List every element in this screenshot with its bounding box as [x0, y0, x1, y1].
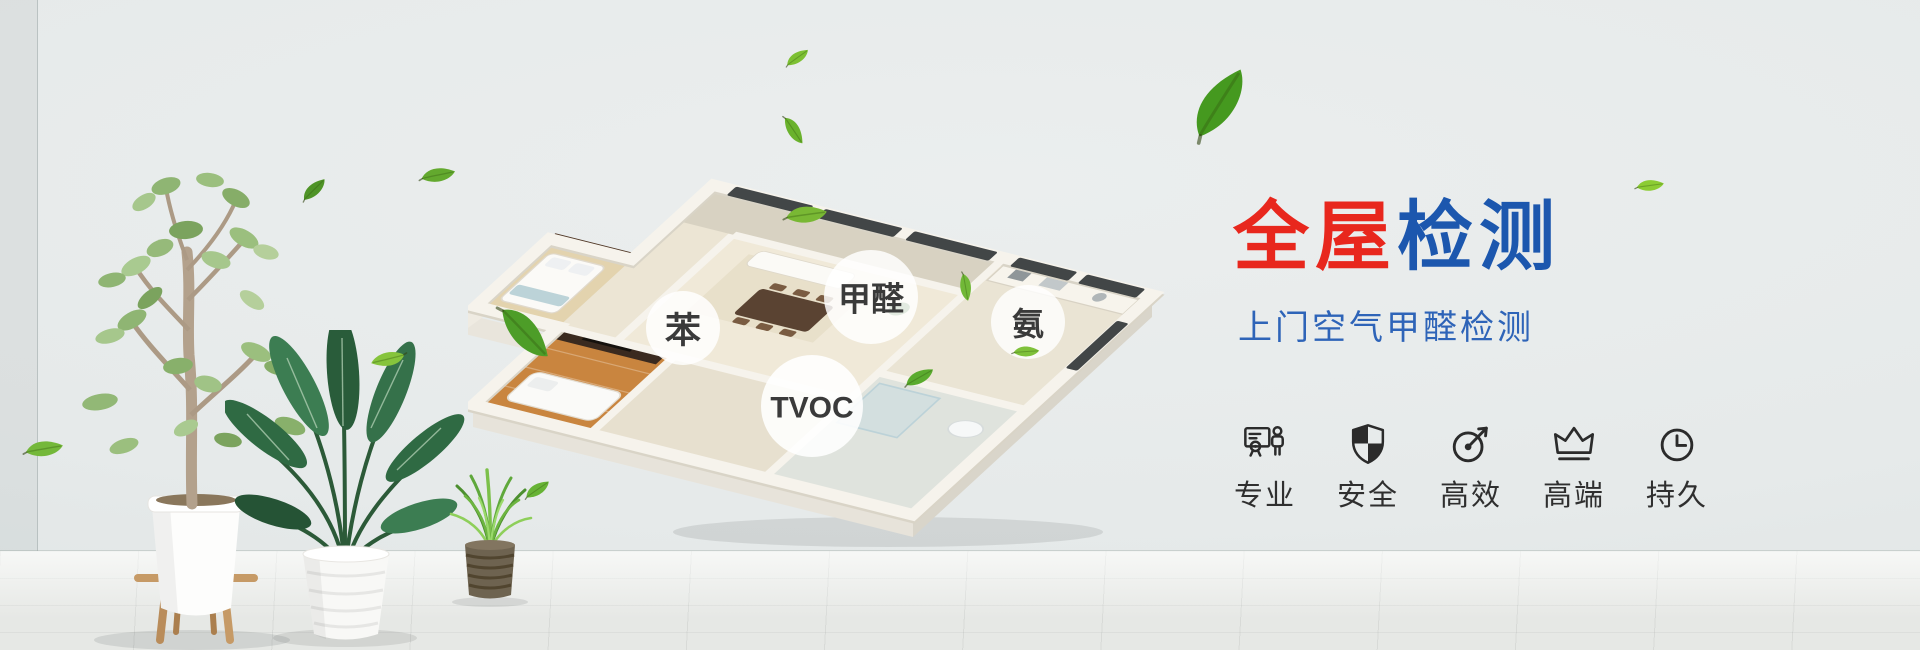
feature-label: 持久: [1646, 472, 1708, 514]
feature-efficient: 高效: [1438, 421, 1504, 514]
wall-corner-shade: [0, 0, 37, 551]
feature-safe: 安全: [1335, 421, 1401, 514]
feature-label: 高端: [1543, 472, 1605, 514]
pollutant-bubble-tvoc: TVOC: [761, 355, 863, 457]
crown-icon: [1551, 421, 1597, 467]
feature-professional: 专业: [1232, 421, 1298, 514]
title-red-part: 全屋: [1233, 195, 1397, 280]
certificate-person-icon: [1242, 421, 1288, 467]
subtitle: 上门空气甲醛检测: [1238, 300, 1534, 349]
pollutant-label-benzene: 苯: [665, 310, 701, 351]
pollutant-bubble-benzene: 苯: [646, 291, 720, 365]
shield-icon: [1345, 421, 1391, 467]
wall-corner-line: [37, 0, 38, 551]
promo-banner: 苯 甲醛 氨 TVOC 全屋检测 上门空气甲醛检测: [0, 0, 1920, 650]
leaf-decoration: [367, 342, 409, 372]
pollutant-label-tvoc: TVOC: [770, 392, 853, 425]
gauge-icon: [1448, 421, 1494, 467]
leaf-decoration: [1168, 55, 1277, 159]
leaf-decoration: [416, 161, 459, 192]
feature-highend: 高端: [1541, 421, 1607, 514]
leaf-decoration: [776, 111, 807, 152]
medium-plant: [225, 330, 465, 650]
leaf-decoration: [781, 45, 815, 72]
feature-lasting: 持久: [1644, 421, 1710, 514]
pollutant-label-ammonia: 氨: [1012, 306, 1044, 342]
feature-label: 安全: [1337, 472, 1399, 514]
features-row: 专业 安全 高效: [1232, 421, 1710, 514]
title-blue-part: 检测: [1397, 195, 1561, 280]
feature-label: 高效: [1440, 472, 1502, 514]
clock-icon: [1654, 421, 1700, 467]
leaf-decoration: [1632, 174, 1668, 201]
feature-label: 专业: [1234, 472, 1296, 514]
page-title: 全屋检测: [1233, 200, 1561, 276]
pollutant-bubble-formaldehyde: 甲醛: [824, 250, 918, 344]
pollutant-label-formaldehyde: 甲醛: [838, 281, 905, 318]
